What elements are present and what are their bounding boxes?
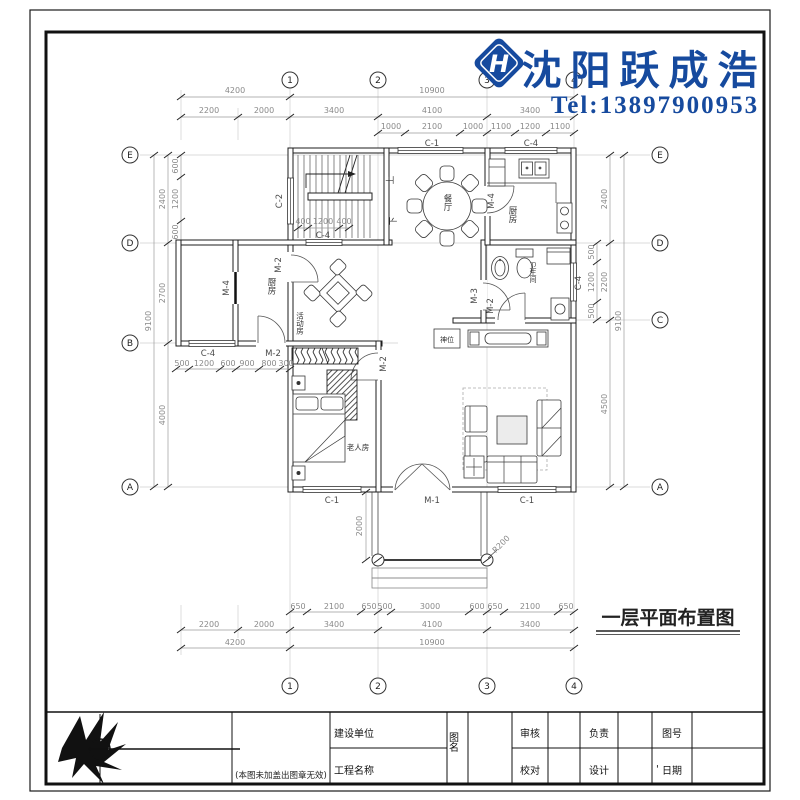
dim-text: 1200: [587, 272, 596, 292]
room-label-kitchen-left: 厨房: [266, 278, 276, 296]
coffee-table: [497, 416, 527, 444]
window-label-c4: C-4: [201, 349, 215, 359]
title-block: (本图未加盖出图章无效) 建设单位 工程名称 图名 审核 校对 负责 设计 图号…: [46, 712, 764, 784]
dim-text: 650: [361, 602, 376, 611]
dim-text: 500: [377, 602, 392, 611]
drawing-sheet: 1 2 3 4 1 2 3 4 E D B A E D C A 4200 109…: [0, 0, 800, 800]
sofa-bottom: [487, 456, 537, 483]
window-label-c1: C-1: [520, 496, 534, 506]
door-m1-entrance: [393, 464, 452, 493]
door-m4-partition: [232, 272, 239, 304]
shrine-area: 神位: [434, 329, 548, 348]
grid-row-label: C: [657, 316, 663, 326]
dims-top: 4200 10900 2200 2000 3400 4100 3400 1000…: [177, 86, 578, 149]
dim-text: 3400: [324, 106, 344, 115]
room-label-dining: 餐厅: [442, 194, 452, 211]
dim-text: 400: [336, 217, 351, 226]
cad-canvas: 1 2 3 4 1 2 3 4 E D B A E D C A 4200 109…: [0, 0, 800, 800]
dim-text: 1200: [313, 217, 333, 226]
grid-row-label: D: [657, 239, 664, 249]
dims-bottom: 650 2100 650 500 3000 600 650 2100 650 2…: [177, 496, 578, 651]
door-label-m2: M-2: [379, 356, 389, 372]
armchair: [465, 406, 487, 432]
dim-text: 650: [558, 602, 573, 611]
grid-bubbles: 1 2 3 4 1 2 3 4 E D B A E D C A: [122, 72, 668, 694]
pillow: [321, 397, 343, 410]
door-label-m3: M-3: [470, 288, 480, 304]
dim-text: 3400: [324, 620, 344, 629]
dim-text: 3400: [520, 106, 540, 115]
window-c2-stair: [288, 178, 294, 224]
dim-text: 1100: [491, 122, 511, 131]
dim-text: 600: [171, 224, 180, 239]
stamp-area: [58, 712, 240, 784]
field-review: 审核: [520, 727, 540, 740]
field-date: 日期: [662, 765, 682, 777]
dim-text: 4100: [422, 620, 442, 629]
dim-text: 600: [469, 602, 484, 611]
grid-col-label: 4: [571, 682, 577, 692]
stamp-note: (本图未加盖出图章无效): [235, 770, 327, 781]
dim-text: 600: [171, 158, 180, 173]
dim-text: 4200: [225, 86, 245, 95]
dim-text: 500: [587, 244, 596, 259]
dim-text: 2400: [158, 189, 167, 209]
dim-text: 300: [278, 359, 293, 368]
tv: [485, 333, 531, 344]
bedroom-set: 老人房: [292, 348, 369, 480]
toilet-tank: [516, 249, 533, 257]
plan-title-text: 一层平面布置图: [601, 606, 734, 629]
brand-logo-letter: H: [489, 50, 509, 78]
grid-row-label: B: [127, 339, 133, 349]
dim-text: 4500: [600, 394, 609, 414]
dim-text: R200: [491, 534, 512, 555]
fridge: [489, 159, 505, 186]
grid-row-label: E: [127, 151, 133, 161]
pillow: [296, 397, 318, 410]
dim-text: 400: [295, 217, 310, 226]
dim-text: 10900: [419, 86, 444, 95]
grid-col-label: 2: [375, 76, 381, 86]
dim-text: 800: [261, 359, 276, 368]
bath-counter: [547, 248, 570, 264]
dim-text: 3400: [520, 620, 540, 629]
porch-step: [372, 578, 487, 588]
dim-text: 4200: [225, 638, 245, 647]
dim-text: 2100: [324, 602, 344, 611]
door-m2-wing-kitchen: [256, 316, 286, 347]
dim-text: 1200: [194, 359, 214, 368]
dim-text: 1100: [550, 122, 570, 131]
dim-text: 4000: [158, 405, 167, 425]
living-room-set: [463, 388, 561, 483]
dim-text: 2000: [254, 106, 274, 115]
grid-col-label: 1: [287, 682, 293, 692]
field-lead: 负责: [589, 727, 609, 740]
door-label-m2: M-2: [486, 298, 496, 314]
door-label-m2: M-2: [265, 349, 281, 359]
bathroom-fixtures: 卫生间: [492, 248, 571, 320]
dim-text: 650: [487, 602, 502, 611]
grid-row-label: E: [657, 151, 663, 161]
room-label-activity: 活动房: [295, 311, 304, 336]
dim-text: 2100: [422, 122, 442, 131]
field-owner: 建设单位: [334, 727, 374, 740]
window-c4-wing: [189, 341, 235, 347]
brand-phone: Tel:13897900953: [551, 92, 759, 119]
room-label-kitchen: 厨房: [507, 206, 517, 224]
dim-text: 2100: [520, 602, 540, 611]
dim-text: 1200: [520, 122, 540, 131]
dim-text: 2700: [158, 283, 167, 303]
grid-col-label: 1: [287, 76, 293, 86]
window-c1-bottom-left: [303, 487, 361, 493]
porch-step: [372, 568, 487, 578]
plan-title: 一层平面布置图: [596, 606, 740, 635]
stair-up-label: 上: [386, 175, 396, 184]
door-label-m2: M-2: [274, 257, 284, 273]
door-label-m1: M-1: [424, 496, 440, 506]
dim-text: 2200: [600, 272, 609, 292]
dim-text: 500: [174, 359, 189, 368]
field-design: 设计: [589, 764, 609, 777]
field-sheet-no: 图号: [662, 728, 682, 740]
dim-text: 1200: [171, 189, 180, 209]
dim-text: 650: [290, 602, 305, 611]
dim-text: 2000: [355, 516, 364, 536]
window-label-c4: C-4: [574, 276, 584, 290]
dim-text: 2000: [254, 620, 274, 629]
stair-down-label: 下: [389, 216, 399, 225]
grid-col-label: 2: [375, 682, 381, 692]
dim-text: 500: [587, 303, 596, 318]
grid-col-label: 3: [484, 682, 490, 692]
dim-text: 2400: [600, 189, 609, 209]
dims-right: 500 1200 500 2400 2200 4500 9100: [587, 152, 628, 490]
brand-name: 沈阳跃成浩: [522, 48, 767, 93]
window-label-c4: C-4: [316, 231, 330, 241]
door-label-m4: M-4: [487, 193, 497, 209]
dim-text: 2200: [199, 620, 219, 629]
dim-text: 1000: [463, 122, 483, 131]
window-label-c1: C-1: [325, 496, 339, 506]
brand-header: H 沈阳跃成浩 Tel:13897900953: [472, 36, 766, 119]
dim-text: 2200: [199, 106, 219, 115]
dim-text: 600: [220, 359, 235, 368]
stamp-bird-icon: [58, 712, 126, 784]
window-c1-top: [398, 148, 463, 154]
window-label-c2: C-2: [275, 194, 285, 208]
grid-row-label: D: [127, 239, 134, 249]
field-check: 校对: [520, 764, 540, 777]
kitchen-top-right: 厨房: [487, 159, 572, 233]
room-label-shrine: 神位: [440, 335, 454, 344]
room-label-elder: 老人房: [347, 442, 370, 452]
dim-text: 3000: [420, 602, 440, 611]
grid-row-label: A: [127, 483, 134, 493]
dim-text: 900: [239, 359, 254, 368]
activity-room-set: 活动房: [295, 258, 373, 336]
door-label-m4: M-4: [222, 280, 232, 296]
room-label-bathroom: 卫生间: [529, 262, 537, 284]
dim-text: 9100: [614, 311, 623, 331]
dim-text: 1000: [381, 122, 401, 131]
dim-text: 4100: [422, 106, 442, 115]
window-c1-bottom-right: [498, 487, 556, 493]
field-date-tick: ': [656, 764, 659, 775]
dim-text: 9100: [144, 311, 153, 331]
dining-set: 餐厅: [407, 166, 487, 246]
window-c4-top: [505, 148, 557, 154]
field-sheet-name: 图名: [447, 732, 459, 753]
dim-text: 10900: [419, 638, 444, 647]
field-project: 工程名称: [334, 764, 374, 777]
grid-row-label: A: [657, 483, 664, 493]
door-m2-hall: [287, 252, 318, 282]
